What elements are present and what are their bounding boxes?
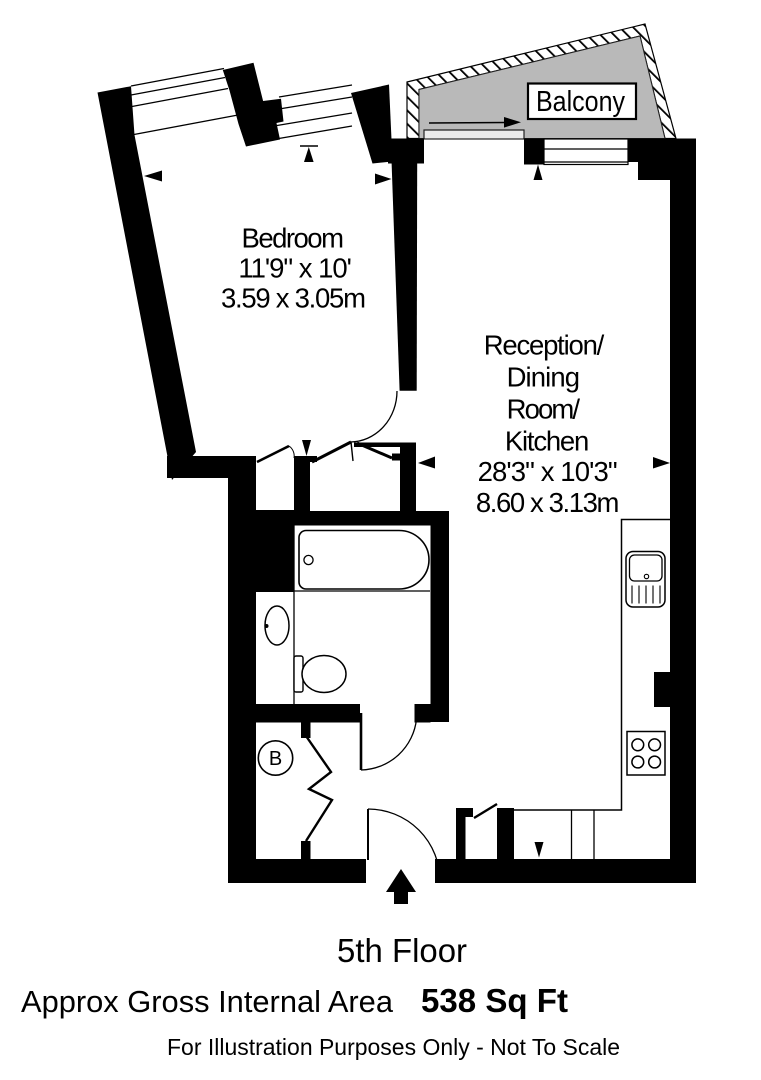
svg-text:Approx Gross Internal Area: Approx Gross Internal Area	[21, 984, 394, 1019]
svg-text:538 Sq Ft: 538 Sq Ft	[421, 982, 568, 1019]
svg-text:Reception/: Reception/	[484, 330, 605, 361]
svg-text:28'3" x 10'3": 28'3" x 10'3"	[478, 456, 618, 487]
svg-text:8.60 x 3.13m: 8.60 x 3.13m	[476, 487, 620, 518]
svg-text:Kitchen: Kitchen	[505, 426, 589, 457]
svg-text:Room/: Room/	[507, 394, 581, 425]
svg-text:11'9" x 10': 11'9" x 10'	[238, 253, 352, 284]
svg-text:Balcony: Balcony	[536, 86, 625, 118]
svg-text:Bedroom: Bedroom	[242, 223, 345, 254]
svg-text:For Illustration Purposes Only: For Illustration Purposes Only - Not To …	[167, 1034, 620, 1060]
svg-text:B: B	[269, 748, 282, 770]
svg-text:5th Floor: 5th Floor	[337, 932, 467, 969]
svg-text:Dining: Dining	[507, 362, 580, 393]
svg-text:3.59 x 3.05m: 3.59 x 3.05m	[221, 283, 366, 314]
